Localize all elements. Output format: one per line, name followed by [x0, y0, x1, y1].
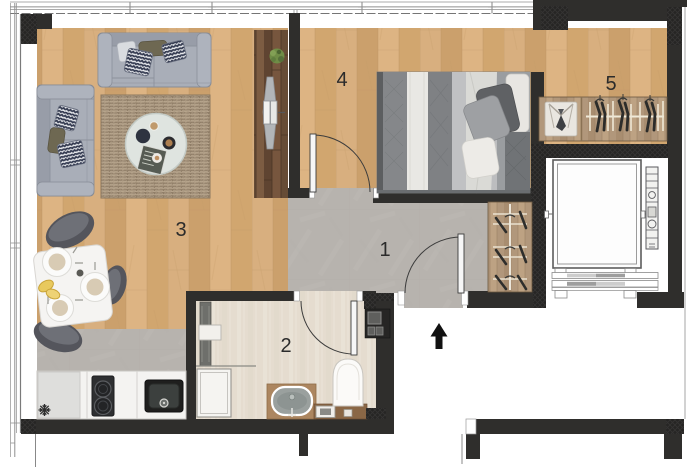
svg-text:2: 2: [280, 335, 291, 357]
svg-text:1: 1: [379, 239, 390, 261]
svg-text:4: 4: [336, 69, 347, 91]
svg-text:5: 5: [605, 73, 616, 95]
svg-text:3: 3: [175, 219, 186, 241]
